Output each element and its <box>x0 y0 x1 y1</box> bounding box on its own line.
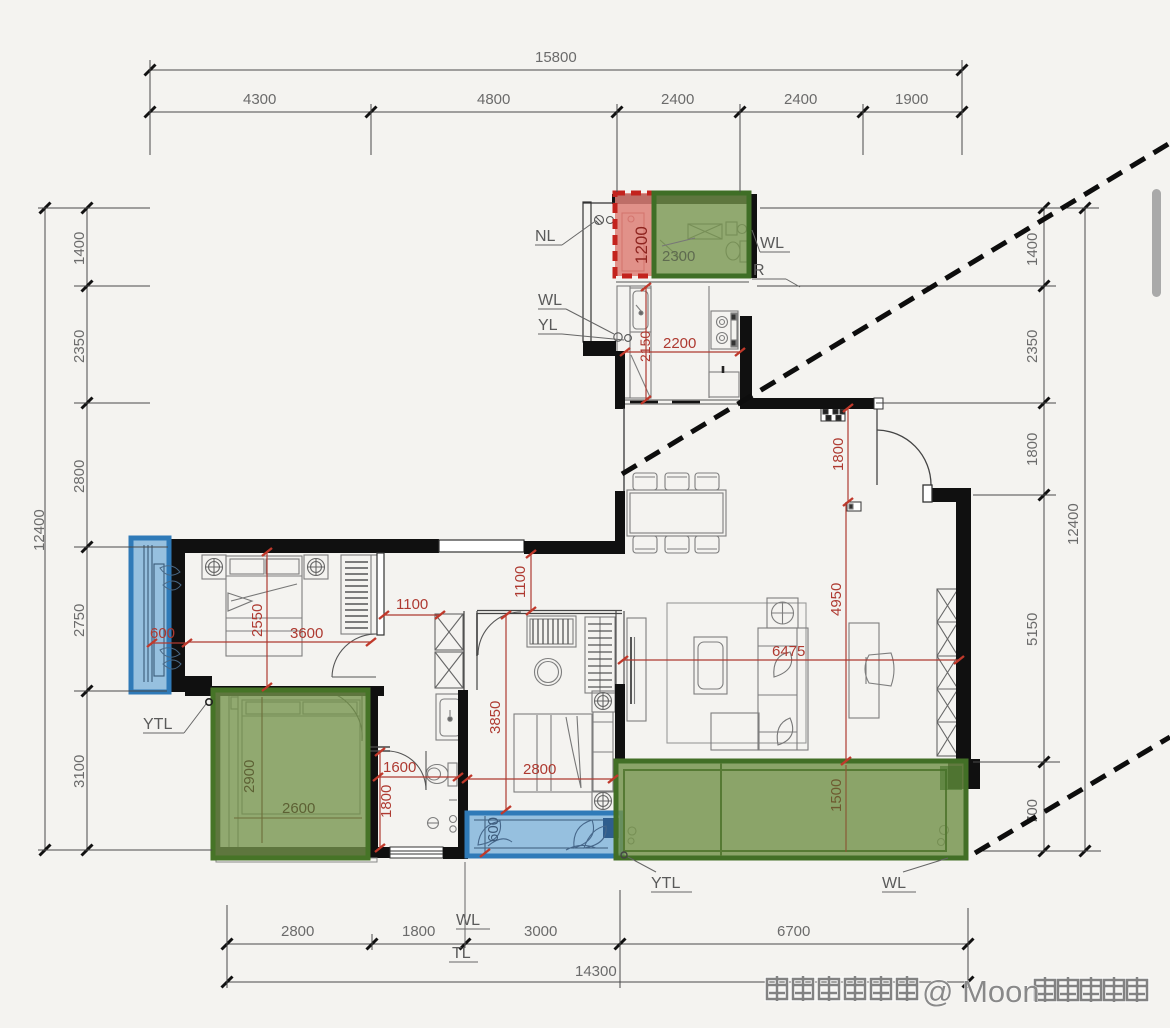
svg-text:4300: 4300 <box>243 91 276 108</box>
svg-text:YTL: YTL <box>143 716 172 733</box>
svg-text:1100: 1100 <box>396 596 428 613</box>
svg-text:2800: 2800 <box>523 761 556 778</box>
svg-text:6475: 6475 <box>772 643 805 660</box>
svg-text:2400: 2400 <box>661 91 694 108</box>
svg-text:1400: 1400 <box>1024 233 1041 266</box>
svg-text:WL: WL <box>538 292 562 309</box>
svg-text:2300: 2300 <box>662 248 695 265</box>
svg-text:WL: WL <box>760 235 784 252</box>
svg-text:1500: 1500 <box>828 779 845 812</box>
svg-text:WL: WL <box>882 875 906 892</box>
svg-text:2800: 2800 <box>71 460 88 493</box>
svg-text:2350: 2350 <box>1024 330 1041 363</box>
svg-text:1800: 1800 <box>378 785 395 818</box>
svg-text:3850: 3850 <box>487 701 504 734</box>
svg-text:4950: 4950 <box>828 583 845 616</box>
svg-text:2550: 2550 <box>249 604 266 637</box>
svg-text:R: R <box>753 262 765 279</box>
svg-text:600: 600 <box>485 817 502 842</box>
svg-text:TL: TL <box>452 945 471 962</box>
svg-text:2200: 2200 <box>663 335 696 352</box>
svg-text:NL: NL <box>535 228 556 245</box>
svg-text:1800: 1800 <box>1024 433 1041 466</box>
svg-text:1900: 1900 <box>895 91 928 108</box>
svg-text:@ Moon: @ Moon <box>922 974 1040 1009</box>
svg-text:4800: 4800 <box>477 91 510 108</box>
svg-text:1600: 1600 <box>383 759 416 776</box>
svg-text:1800: 1800 <box>830 438 847 471</box>
svg-text:WL: WL <box>456 912 480 929</box>
svg-text:1800: 1800 <box>402 923 435 940</box>
svg-text:1400: 1400 <box>71 232 88 265</box>
svg-text:2900: 2900 <box>241 760 258 793</box>
svg-text:1100: 1100 <box>512 566 529 598</box>
svg-text:YTL: YTL <box>651 875 680 892</box>
svg-text:12400: 12400 <box>31 509 48 551</box>
svg-text:6700: 6700 <box>777 923 810 940</box>
svg-text:5150: 5150 <box>1024 613 1041 646</box>
svg-text:2150: 2150 <box>637 331 653 362</box>
svg-text:3000: 3000 <box>524 923 557 940</box>
svg-text:600: 600 <box>150 625 175 642</box>
svg-text:12400: 12400 <box>1065 503 1082 545</box>
svg-text:YL: YL <box>538 317 558 334</box>
svg-text:2400: 2400 <box>784 91 817 108</box>
svg-text:14300: 14300 <box>575 963 617 980</box>
svg-text:3100: 3100 <box>71 755 88 788</box>
svg-text:1200: 1200 <box>632 226 651 264</box>
svg-text:15800: 15800 <box>535 49 577 66</box>
svg-text:2750: 2750 <box>71 604 88 637</box>
svg-text:3600: 3600 <box>290 625 323 642</box>
svg-text:2350: 2350 <box>71 330 88 363</box>
svg-text:2800: 2800 <box>281 923 314 940</box>
svg-text:2600: 2600 <box>282 800 315 817</box>
